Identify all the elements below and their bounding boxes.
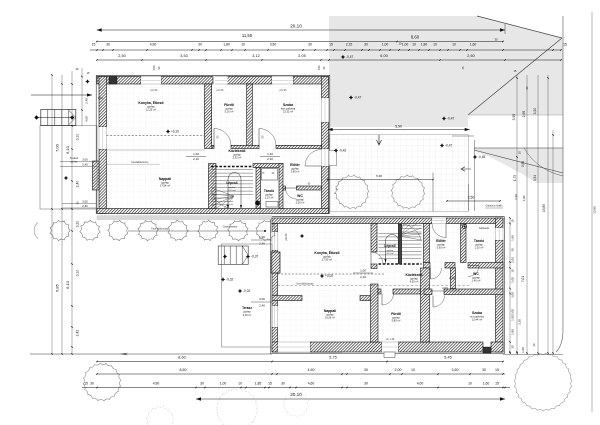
svg-text:3,60 m²: 3,60 m² <box>437 245 446 249</box>
svg-text:2,50: 2,50 <box>468 196 475 200</box>
svg-text:Konyha, Étkező: Konyha, Étkező <box>138 100 163 105</box>
svg-text:8,60: 8,60 <box>178 356 185 360</box>
svg-text:4,90: 4,90 <box>150 43 157 47</box>
svg-text:1,50: 1,50 <box>152 65 156 71</box>
svg-text:1,00: 1,00 <box>521 347 525 353</box>
svg-text:15: 15 <box>84 382 88 386</box>
svg-text:17,04 m²: 17,04 m² <box>160 183 170 187</box>
svg-text:cm 1,40: cm 1,40 <box>386 338 395 341</box>
svg-text:Közlekedő: Közlekedő <box>406 273 423 277</box>
svg-text:30: 30 <box>482 368 486 372</box>
svg-text:3,95: 3,95 <box>512 114 516 121</box>
svg-text:2,00: 2,00 <box>442 286 448 290</box>
svg-text:Előtér: Előtér <box>436 239 446 243</box>
svg-text:3,50: 3,50 <box>533 108 537 115</box>
svg-text:13,85: 13,85 <box>593 206 597 214</box>
svg-text:3,53: 3,53 <box>180 54 187 58</box>
svg-text:-0,37: -0,37 <box>251 255 258 259</box>
svg-text:2,10: 2,10 <box>267 157 273 161</box>
svg-text:1,80: 1,80 <box>421 43 428 47</box>
svg-text:1,13 m²: 1,13 m² <box>265 195 274 199</box>
svg-text:1,50: 1,50 <box>317 65 321 71</box>
svg-text:3,60: 3,60 <box>452 368 459 372</box>
svg-text:pm 90: pm 90 <box>285 233 288 240</box>
svg-text:4,15 m²: 4,15 m² <box>228 189 236 192</box>
svg-text:3,50: 3,50 <box>270 43 277 47</box>
svg-text:2,95: 2,95 <box>522 111 526 118</box>
svg-text:30: 30 <box>511 345 515 349</box>
svg-text:1,20 m²: 1,20 m² <box>475 245 484 249</box>
svg-text:30: 30 <box>494 38 498 42</box>
svg-text:10: 10 <box>518 151 522 155</box>
svg-text:3,00: 3,00 <box>82 200 88 204</box>
svg-text:9,06 m²: 9,06 m² <box>243 314 252 317</box>
svg-text:-0,42: -0,42 <box>339 149 346 153</box>
svg-text:5,48: 5,48 <box>376 174 382 178</box>
svg-text:3,95: 3,95 <box>521 161 525 167</box>
svg-text:2,50: 2,50 <box>118 54 125 58</box>
svg-text:WC: WC <box>297 194 303 198</box>
svg-text:+0,00: +0,00 <box>325 274 333 278</box>
svg-text:7,01: 7,01 <box>521 276 525 282</box>
svg-text:8,60: 8,60 <box>411 35 420 40</box>
svg-text:2,40: 2,40 <box>259 304 265 308</box>
svg-text:2,40: 2,40 <box>85 98 89 104</box>
svg-text:5,75: 5,75 <box>329 356 336 360</box>
svg-text:30: 30 <box>198 43 202 47</box>
svg-text:1,00: 1,00 <box>220 382 227 386</box>
svg-text:13,32 m²: 13,32 m² <box>283 109 293 113</box>
svg-text:pm 90: pm 90 <box>151 89 158 92</box>
svg-text:Terasz: Terasz <box>242 306 252 310</box>
svg-text:1,00: 1,00 <box>522 195 526 201</box>
svg-text:10: 10 <box>511 269 515 273</box>
svg-text:Szoba: Szoba <box>283 103 293 107</box>
svg-text:8,60: 8,60 <box>180 368 187 372</box>
svg-text:30: 30 <box>308 43 312 47</box>
svg-text:3,10: 3,10 <box>76 270 80 277</box>
svg-text:10: 10 <box>411 368 415 372</box>
svg-text:Előtér: Előtér <box>290 163 300 167</box>
svg-text:Kerti kifolyócsap: Kerti kifolyócsap <box>151 228 169 231</box>
svg-text:30: 30 <box>106 43 110 47</box>
svg-text:5,90: 5,90 <box>395 125 402 129</box>
svg-text:2,10: 2,10 <box>449 276 455 280</box>
svg-text:30: 30 <box>76 201 80 205</box>
svg-text:Szoba: Szoba <box>472 311 482 315</box>
svg-text:3,20: 3,20 <box>518 319 522 325</box>
svg-text:Gázkazán: Gázkazán <box>479 228 490 230</box>
svg-text:Gépkocsi beálló: Gépkocsi beálló <box>485 205 503 208</box>
svg-text:7,00: 7,00 <box>55 143 60 152</box>
svg-text:15: 15 <box>268 382 272 386</box>
svg-text:1,75: 1,75 <box>513 175 517 181</box>
svg-text:1,00: 1,00 <box>360 269 366 273</box>
svg-text:3,32 m²: 3,32 m² <box>233 155 242 159</box>
svg-text:30: 30 <box>200 382 204 386</box>
svg-text:3,34: 3,34 <box>533 175 537 181</box>
svg-text:Konyha, Étkező: Konyha, Étkező <box>314 250 339 255</box>
svg-text:2,40: 2,40 <box>82 204 88 208</box>
svg-text:16,56 m²: 16,56 m² <box>325 315 335 319</box>
svg-text:4,60: 4,60 <box>308 382 315 386</box>
svg-text:5,16 m²: 5,16 m² <box>225 109 234 113</box>
svg-text:3,10: 3,10 <box>76 134 80 141</box>
svg-text:2,42: 2,42 <box>76 330 80 337</box>
svg-text:10: 10 <box>468 382 472 386</box>
svg-text:1,00: 1,00 <box>511 277 515 283</box>
svg-text:gyelep: gyelep <box>71 162 78 164</box>
svg-text:Terasz: Terasz <box>70 156 79 160</box>
svg-text:1,86: 1,86 <box>511 329 515 335</box>
svg-text:10: 10 <box>452 43 456 47</box>
svg-text:2,40: 2,40 <box>76 181 80 188</box>
svg-text:1,00: 1,00 <box>402 43 409 47</box>
svg-text:-0,32: -0,32 <box>226 278 233 282</box>
svg-text:3,20: 3,20 <box>76 221 80 228</box>
svg-text:4,15 m²: 4,15 m² <box>386 252 394 255</box>
svg-text:13,85: 13,85 <box>542 204 546 212</box>
svg-text:10: 10 <box>238 382 242 386</box>
svg-text:1,00: 1,00 <box>382 43 389 47</box>
svg-text:4,60: 4,60 <box>308 368 315 372</box>
svg-text:10: 10 <box>532 343 536 347</box>
svg-text:Közlekedő: Közlekedő <box>229 149 246 153</box>
svg-text:1,00: 1,00 <box>97 96 103 100</box>
svg-text:Kandallókémény: Kandallókémény <box>132 162 150 164</box>
svg-text:5,80 m²: 5,80 m² <box>392 318 401 322</box>
svg-text:2,00: 2,00 <box>511 257 515 263</box>
svg-text:2,40: 2,40 <box>259 242 265 246</box>
svg-text:10: 10 <box>241 43 245 47</box>
svg-text:20,10: 20,10 <box>290 24 302 29</box>
svg-text:-0,47: -0,47 <box>447 117 454 121</box>
svg-text:2,90 m²: 2,90 m² <box>291 169 300 173</box>
svg-text:-0,47: -0,47 <box>445 144 452 148</box>
svg-text:4,50 m²: 4,50 m² <box>410 279 419 283</box>
svg-text:30: 30 <box>511 248 515 252</box>
svg-text:5,45: 5,45 <box>444 356 451 360</box>
svg-text:30: 30 <box>364 382 368 386</box>
svg-text:12,26 m²: 12,26 m² <box>146 107 156 111</box>
svg-text:-0,47: -0,47 <box>354 96 361 100</box>
svg-text:1,50: 1,50 <box>511 315 515 321</box>
svg-text:1,60: 1,60 <box>483 382 490 386</box>
svg-text:2,10: 2,10 <box>193 157 199 161</box>
svg-text:3,00: 3,00 <box>511 292 515 298</box>
svg-text:1,40 m²: 1,40 m² <box>472 278 481 282</box>
svg-text:pm 90: pm 90 <box>280 89 287 92</box>
svg-text:4,00: 4,00 <box>85 116 89 122</box>
svg-text:2,00: 2,00 <box>395 368 402 372</box>
svg-text:2,40: 2,40 <box>82 163 88 167</box>
svg-text:10: 10 <box>412 43 416 47</box>
svg-text:gyelep: gyelep <box>387 250 394 252</box>
svg-text:3,00: 3,00 <box>259 297 265 301</box>
svg-text:15: 15 <box>511 219 515 223</box>
svg-text:Gázkonvektor: Gázkonvektor <box>223 226 238 229</box>
svg-text:15: 15 <box>92 43 96 47</box>
svg-text:1,85: 1,85 <box>255 382 262 386</box>
svg-text:6,10: 6,10 <box>65 280 70 289</box>
svg-text:Kerti kifolyócsap: Kerti kifolyócsap <box>297 283 314 286</box>
svg-text:15: 15 <box>495 382 499 386</box>
svg-text:1,60: 1,60 <box>470 43 477 47</box>
svg-text:2,60: 2,60 <box>467 54 474 58</box>
svg-text:20,10: 20,10 <box>290 392 302 397</box>
svg-text:Fürdő: Fürdő <box>391 312 401 316</box>
svg-text:3,12: 3,12 <box>252 54 259 58</box>
svg-text:30: 30 <box>364 368 368 372</box>
svg-text:6,00: 6,00 <box>380 54 387 58</box>
svg-text:10: 10 <box>433 43 437 47</box>
svg-text:4,00: 4,00 <box>417 382 424 386</box>
svg-text:30: 30 <box>364 43 368 47</box>
svg-text:1,86: 1,86 <box>511 235 515 241</box>
svg-text:Nappali: Nappali <box>324 309 336 313</box>
svg-text:15: 15 <box>495 368 499 372</box>
svg-text:Lépcső: Lépcső <box>384 244 395 248</box>
svg-text:1,00: 1,00 <box>193 152 199 156</box>
svg-text:1,00: 1,00 <box>514 194 518 200</box>
svg-text:11,50: 11,50 <box>242 33 253 38</box>
svg-text:-0,47: -0,47 <box>346 55 353 59</box>
svg-text:Tároló: Tároló <box>264 189 274 193</box>
svg-text:+0,10: +0,10 <box>171 130 179 134</box>
svg-text:2,00: 2,00 <box>511 309 515 315</box>
svg-text:12,44 m²: 12,44 m² <box>472 317 482 321</box>
svg-text:2,05: 2,05 <box>298 54 305 58</box>
svg-text:Fürdő: Fürdő <box>224 103 234 107</box>
svg-text:30: 30 <box>90 382 94 386</box>
svg-text:-0,45: -0,45 <box>478 155 485 159</box>
svg-text:2,15: 2,15 <box>346 43 353 47</box>
svg-text:1,40: 1,40 <box>267 152 273 156</box>
svg-text:30: 30 <box>281 382 285 386</box>
svg-text:17,90 m²: 17,90 m² <box>322 257 332 261</box>
svg-text:2,00 m²: 2,00 m² <box>296 200 305 204</box>
svg-text:6,85: 6,85 <box>55 283 60 292</box>
svg-text:-0,02: -0,02 <box>243 289 250 293</box>
svg-text:15: 15 <box>563 43 567 47</box>
svg-text:6,10: 6,10 <box>65 145 70 154</box>
svg-text:pm 60: pm 60 <box>217 89 224 92</box>
svg-text:2,10: 2,10 <box>360 275 366 279</box>
svg-text:Lépcső: Lépcső <box>226 181 237 185</box>
svg-text:15: 15 <box>329 43 333 47</box>
svg-text:3,00: 3,00 <box>82 158 88 162</box>
svg-text:1,80: 1,80 <box>223 43 230 47</box>
svg-text:gyelep: gyelep <box>229 187 236 189</box>
svg-text:Tároló: Tároló <box>474 239 484 243</box>
svg-text:Nappali: Nappali <box>159 177 171 181</box>
svg-text:4,90: 4,90 <box>153 382 160 386</box>
